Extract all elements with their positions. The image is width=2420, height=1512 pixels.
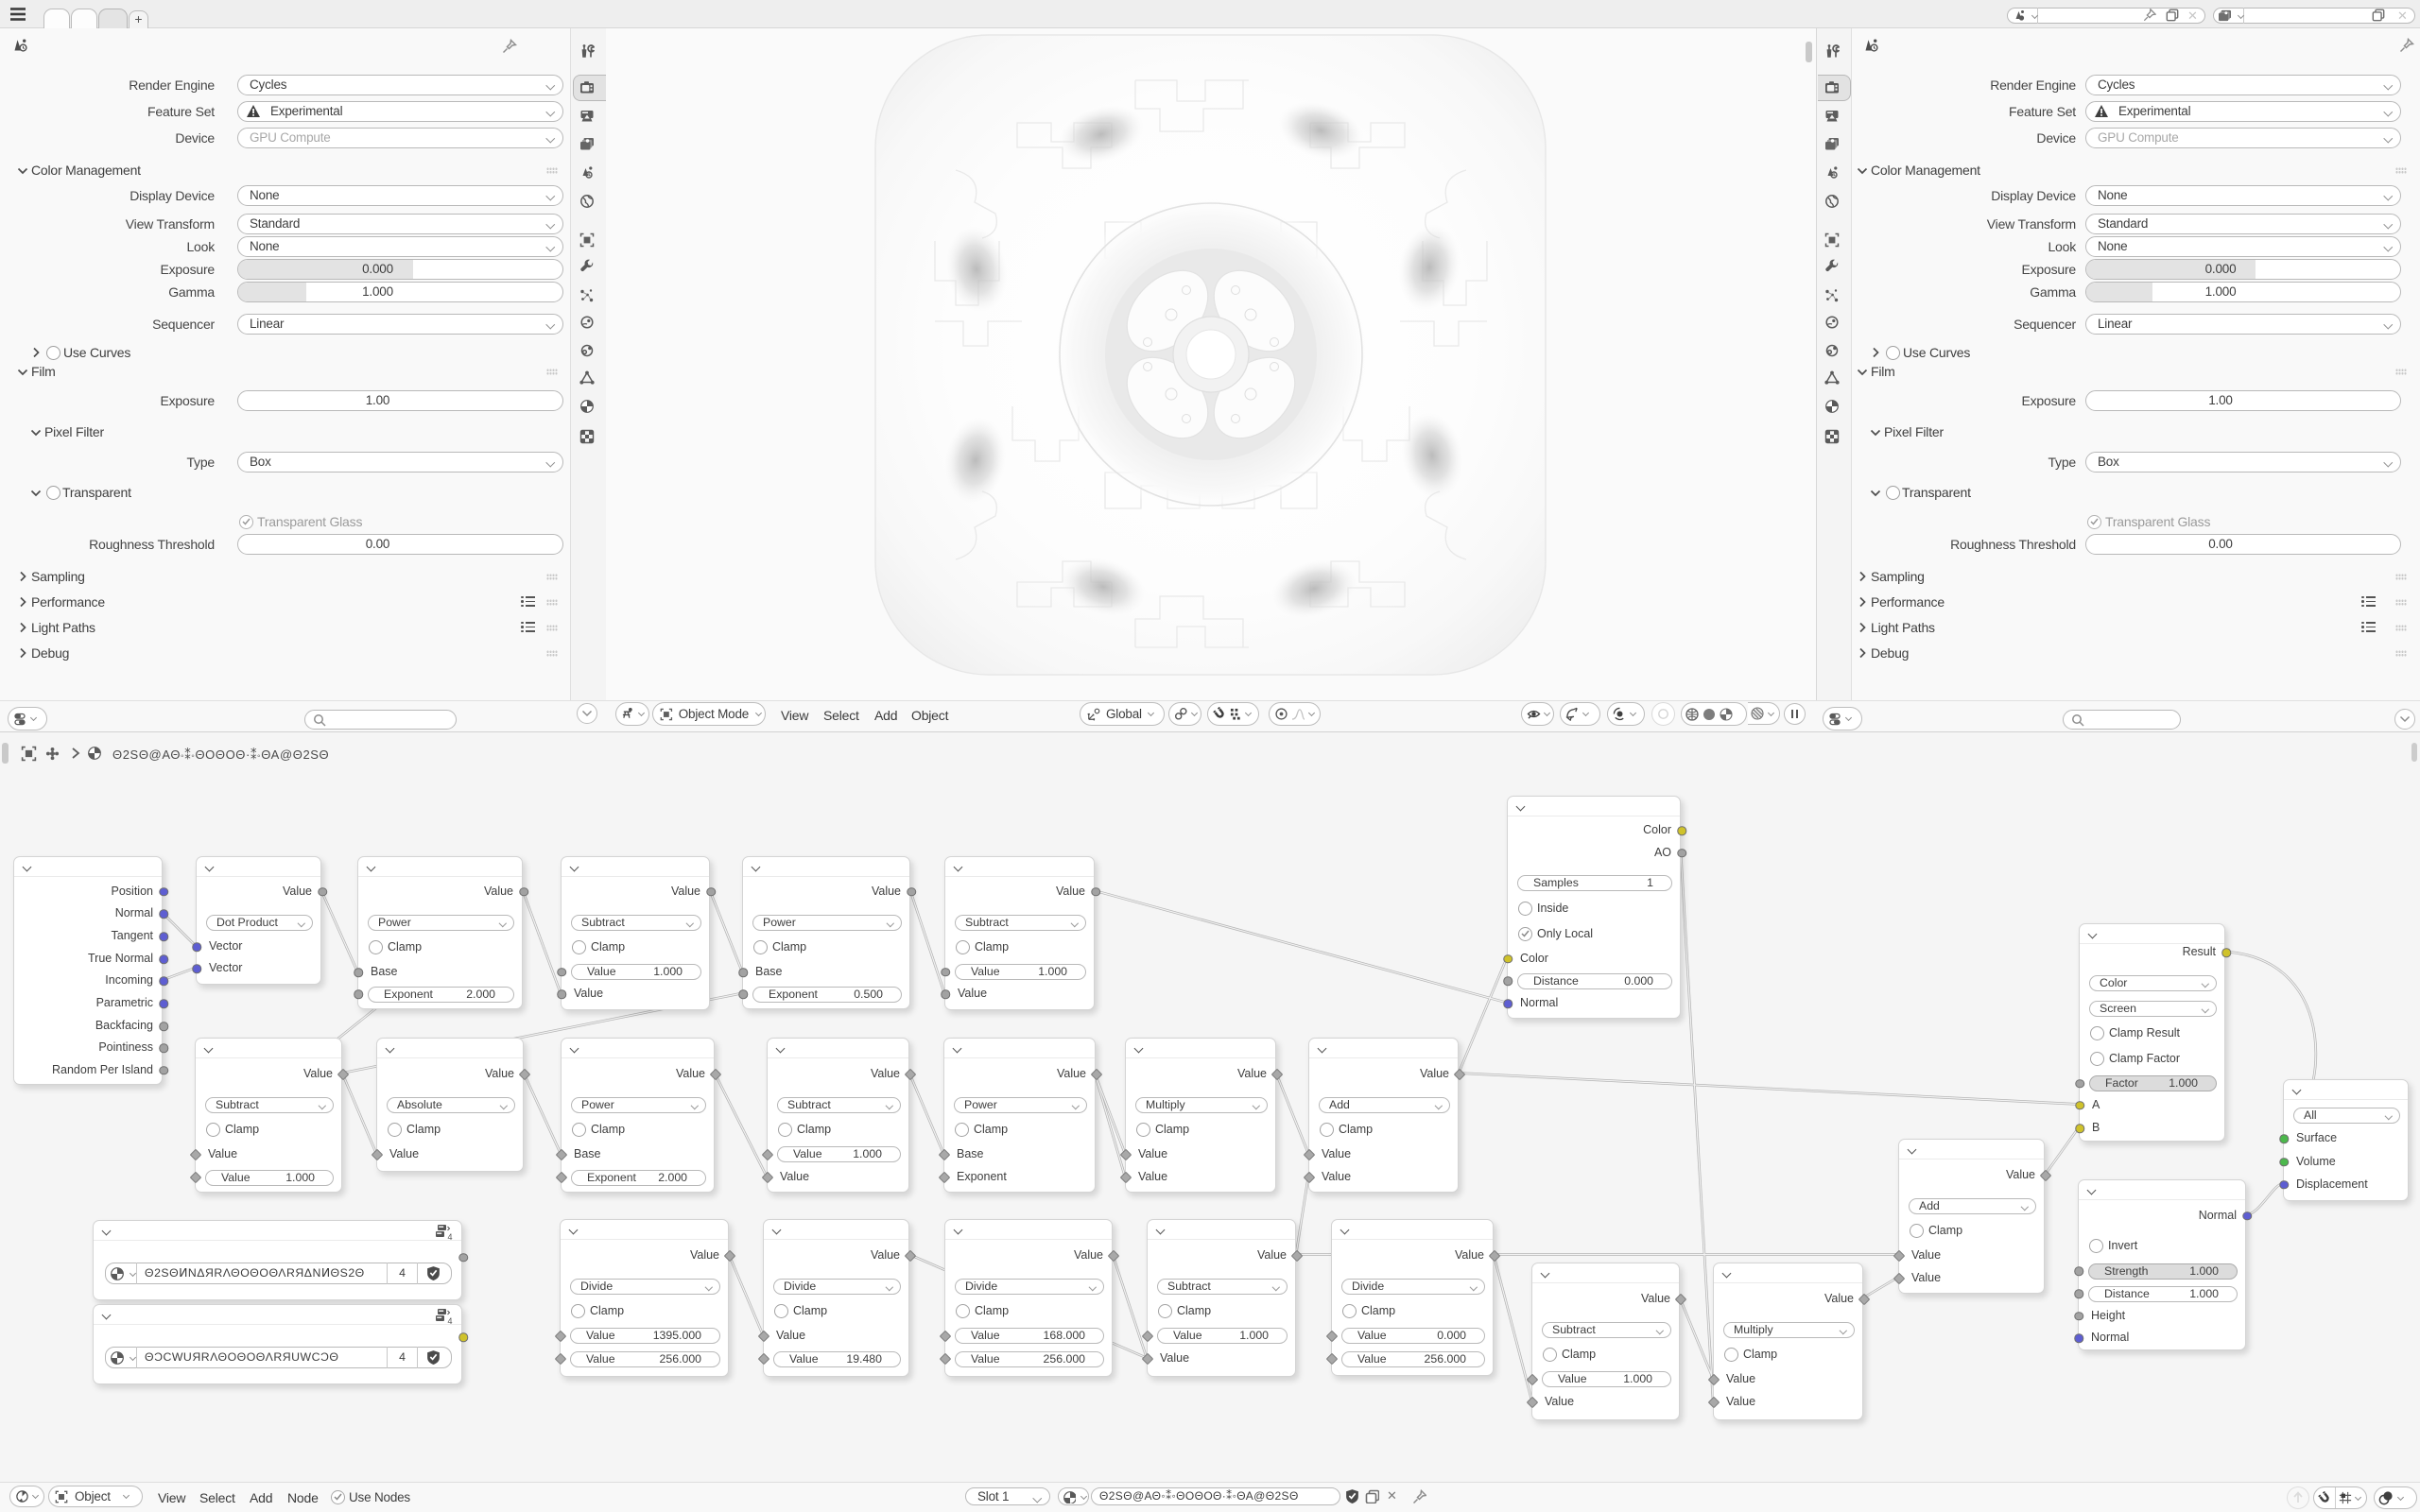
svg-text:4: 4	[448, 1316, 453, 1325]
svg-text:4: 4	[448, 1232, 453, 1241]
